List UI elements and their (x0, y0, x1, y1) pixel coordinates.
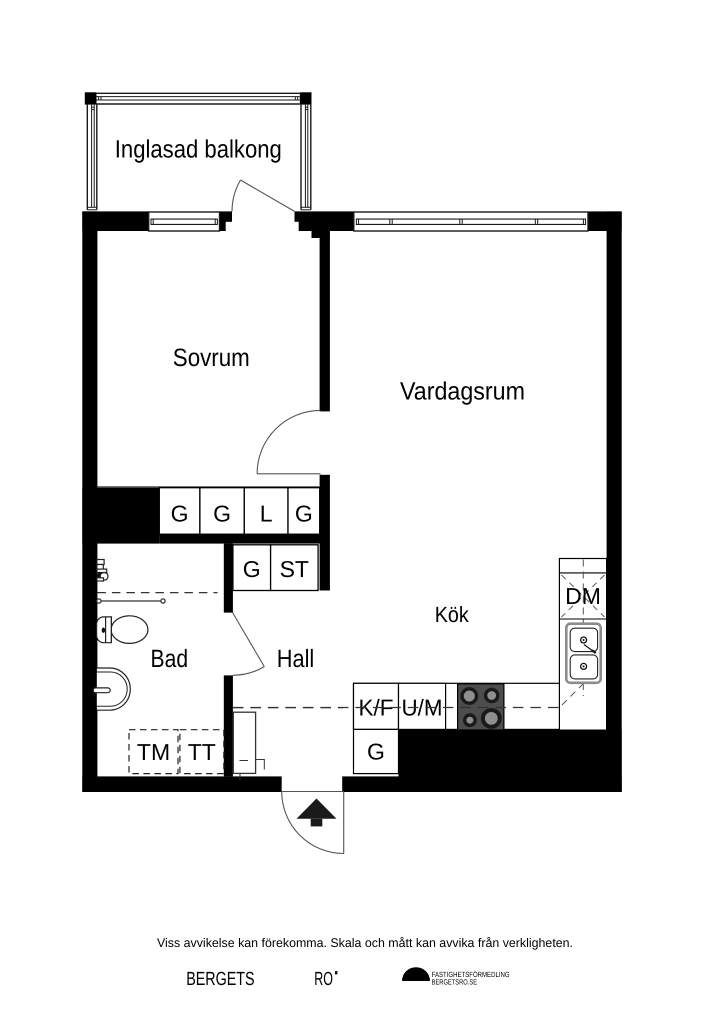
svg-text:TM: TM (137, 739, 170, 765)
svg-text:G: G (213, 501, 231, 527)
svg-text:RO: RO (314, 969, 333, 990)
svg-text:Viss avvikelse kan förekomma.: Viss avvikelse kan förekomma. Skala och … (157, 936, 573, 950)
svg-text:BERGETS: BERGETS (186, 969, 254, 990)
svg-text:G: G (295, 501, 313, 527)
svg-text:Hall: Hall (277, 645, 315, 673)
svg-text:G: G (243, 556, 261, 582)
svg-text:BERGETSRO.SE: BERGETSRO.SE (432, 978, 478, 987)
svg-text:G: G (367, 738, 385, 764)
svg-text:Sovrum: Sovrum (173, 344, 250, 372)
svg-text:G: G (171, 501, 189, 527)
svg-text:Bad: Bad (151, 645, 189, 673)
svg-text:TT: TT (188, 739, 216, 765)
svg-text:L: L (260, 501, 273, 527)
svg-text:Inglasad balkong: Inglasad balkong (115, 136, 282, 164)
svg-text:U/M: U/M (402, 694, 443, 720)
svg-text:Kök: Kök (435, 602, 470, 627)
svg-text:ST: ST (280, 556, 309, 582)
svg-text:Vardagsrum: Vardagsrum (400, 378, 525, 406)
